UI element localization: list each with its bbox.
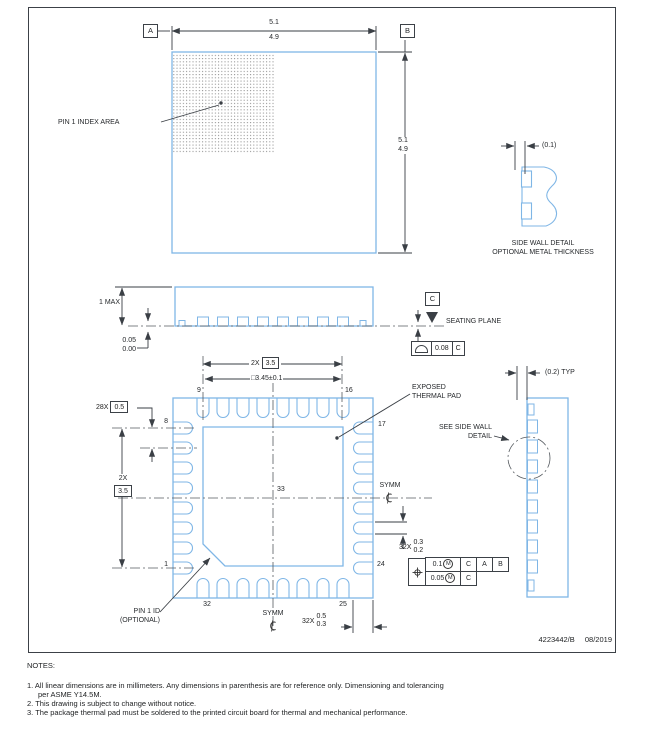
title-block: 4223442/B 08/2019 — [414, 635, 612, 644]
pad-size-dim: □3.45±0.1 — [250, 374, 283, 383]
thermal-pad-leader-dot — [335, 436, 338, 439]
span-dim-left: 2X3.5 — [107, 474, 139, 497]
flatness-datum: C — [452, 341, 465, 356]
position-symbol-icon — [408, 558, 426, 586]
pin1-leader-dot — [219, 101, 222, 104]
pin-33-label: 33 — [276, 485, 286, 494]
see-side-wall-label: SEE SIDE WALLDETAIL — [422, 424, 492, 441]
lead-width-dim: 32X 0.30.2 — [399, 539, 423, 556]
pin-24-label: 24 — [377, 560, 385, 569]
position-tolerance-frame: 0.1M C A B 0.05M C — [408, 558, 509, 586]
note-1-line-2: per ASME Y14.5M. — [38, 690, 102, 699]
lead-length-dim: 32X 0.50.3 — [302, 613, 326, 630]
standoff-dim: 0.050.00 — [108, 337, 136, 354]
centerline-icon-right — [384, 492, 393, 504]
seating-plane-datum-triangle — [426, 312, 438, 323]
revision-date: 08/2019 — [585, 635, 612, 644]
seating-plane-label: SEATING PLANE — [446, 317, 501, 326]
flatness-tolerance-frame: 0.08 C — [412, 341, 465, 356]
sidewall-thickness-dim: (0.1) — [542, 141, 556, 150]
flatness-value: 0.08 — [431, 341, 453, 356]
note-3: 3. The package thermal pad must be solde… — [27, 708, 408, 717]
top-width-max: 5.1 — [262, 18, 286, 27]
sidewall-detail-title: SIDE WALL DETAIL — [478, 239, 608, 248]
metal-typ-dim: (0.2) TYP — [545, 368, 575, 377]
pin-1-label: 1 — [158, 560, 168, 569]
datum-b-box: B — [400, 24, 415, 38]
top-width-min: 4.9 — [262, 33, 286, 42]
note-2: 2. This drawing is subject to change wit… — [27, 699, 196, 708]
pin-8-label: 8 — [158, 417, 168, 426]
pin-16-label: 16 — [345, 386, 353, 395]
right-side-view — [527, 398, 568, 597]
body-height-dim: 1 MAX — [84, 298, 120, 307]
side-view — [175, 287, 373, 326]
pin-25-label: 25 — [336, 600, 350, 609]
symm-label-bottom: SYMM — [255, 609, 291, 618]
sidewall-detail-subtitle: OPTIONAL METAL THICKNESS — [478, 248, 608, 257]
notes-heading: NOTES: — [27, 661, 55, 670]
pin-9-label: 9 — [194, 386, 204, 395]
datum-c-box: C — [425, 292, 440, 306]
datum-a-box: A — [143, 24, 158, 38]
exposed-pad-label: EXPOSEDTHERMAL PAD — [412, 384, 461, 401]
side-wall-detail-shape — [522, 167, 557, 226]
pin1-index-hatch — [173, 53, 275, 153]
pitch-dim: 28X0.5 — [94, 401, 130, 413]
top-view — [172, 52, 376, 253]
symm-label-right: SYMM — [374, 481, 406, 490]
top-height-dim: 5.14.9 — [391, 137, 415, 154]
pin-17-label: 17 — [378, 420, 386, 429]
package-drawing-page: A B C 5.1 4.9 5.14.9 PIN 1 INDEX AREA (0… — [0, 0, 650, 739]
pin1-id-label: PIN 1 ID(OPTIONAL) — [104, 608, 160, 625]
seating-plane-symbol — [411, 341, 432, 356]
pin-32-label: 32 — [200, 600, 214, 609]
package-outlines — [172, 52, 568, 598]
centerline-icon-bottom — [268, 620, 277, 632]
pin1-index-label: PIN 1 INDEX AREA — [58, 118, 119, 127]
document-number: 4223442/B — [538, 635, 574, 644]
span-dim-top: 2X3.5 — [249, 357, 281, 369]
note-1-line-1: 1. All linear dimensions are in millimet… — [27, 681, 444, 690]
